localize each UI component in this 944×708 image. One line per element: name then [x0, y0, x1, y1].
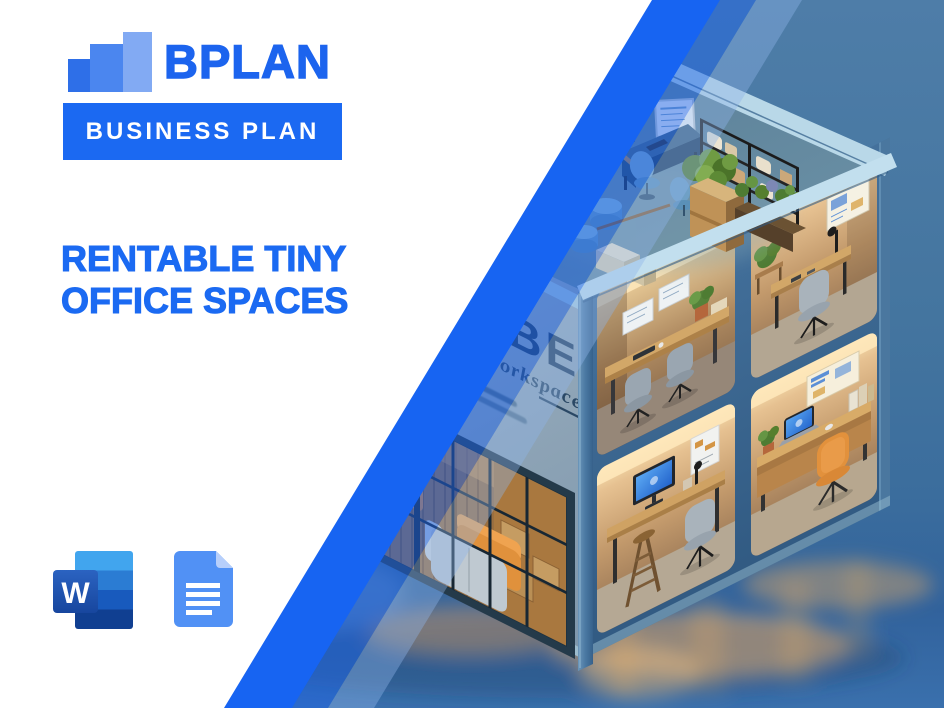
microsoft-word-icon: W: [53, 551, 133, 629]
business-plan-cover: CUBE Workspace: [0, 0, 944, 708]
brand-name: BPLAN: [164, 32, 331, 92]
logo-bar-2: [90, 44, 123, 92]
google-docs-icon: [174, 551, 233, 628]
page-title: RENTABLE TINY OFFICE SPACES: [61, 238, 421, 322]
logo-bar-3: [123, 32, 152, 92]
banner-label: BUSINESS PLAN: [86, 118, 320, 146]
title-line-2: OFFICE SPACES: [61, 280, 421, 322]
file-format-icons: W: [53, 551, 253, 631]
bar-chart-logo-icon: [64, 30, 152, 92]
title-line-1: RENTABLE TINY: [61, 238, 421, 280]
word-letter: W: [61, 577, 90, 610]
business-plan-banner: BUSINESS PLAN: [63, 103, 342, 160]
logo: BPLAN: [64, 28, 484, 92]
